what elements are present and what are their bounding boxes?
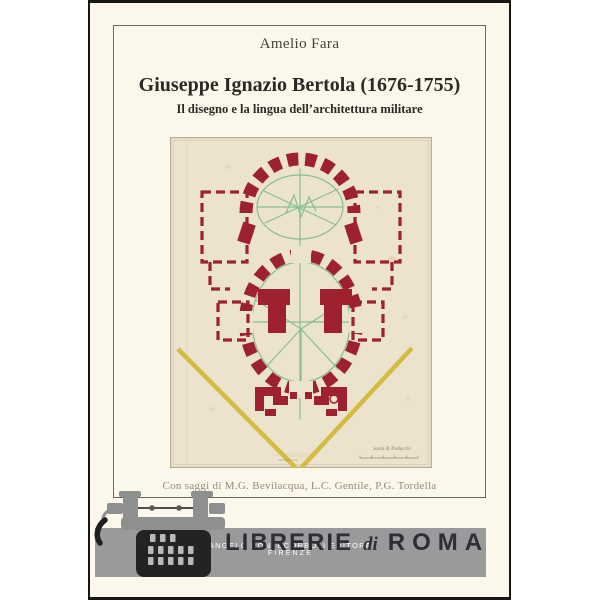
author-name: Amelio Fara [90,36,509,53]
watermark-word-di: di [363,534,378,556]
book-cover[interactable]: Amelio Fara Giuseppe Ignazio Bertola (16… [88,0,511,600]
librerie-di-roma-watermark: LIBRERIE di ROMA [225,529,489,557]
book-title: Giuseppe Ignazio Bertola (1676-1755) [90,74,509,97]
typewriter-icon [93,488,228,581]
watermark-word-librerie: LIBRERIE [225,529,353,557]
plan-drawing: Scala di Trabucchi [170,137,432,468]
watermark-word-roma: ROMA [388,529,489,557]
architectural-plan-figure: Scala di Trabucchi [170,137,432,468]
drawing-caption: Scala di Trabucchi [373,447,411,452]
book-subtitle: Il disegno e la lingua dell’architettura… [90,102,509,117]
product-image-canvas: Amelio Fara Giuseppe Ignazio Bertola (16… [0,0,600,600]
